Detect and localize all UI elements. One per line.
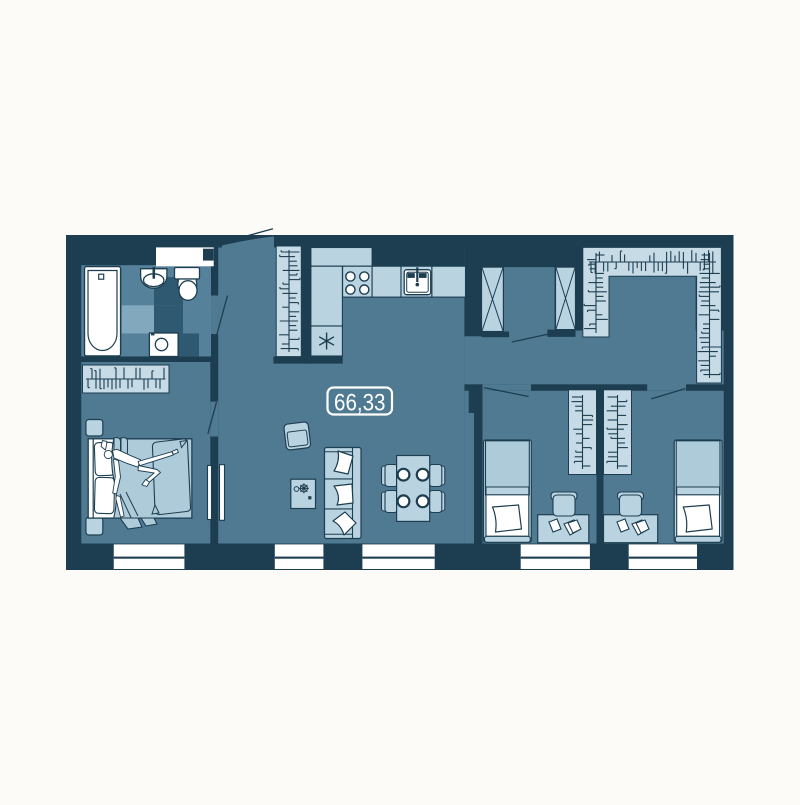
svg-text:66,33: 66,33 [334, 390, 386, 417]
